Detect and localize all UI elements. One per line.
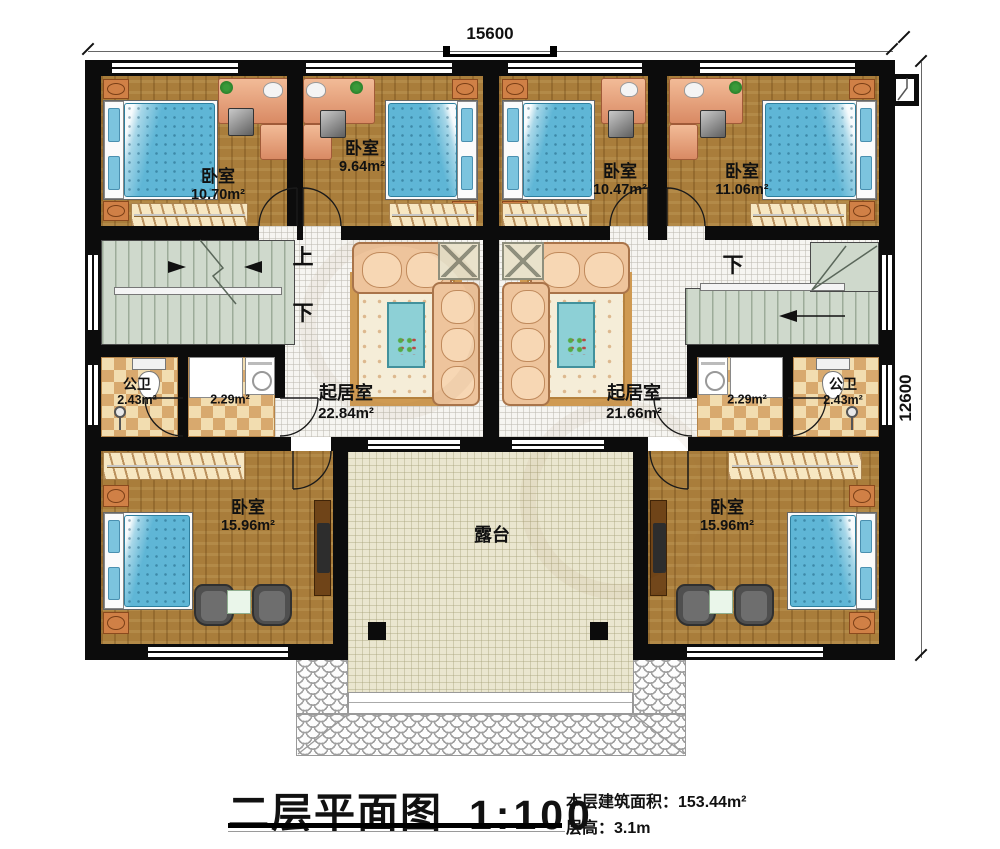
sofa-cushion xyxy=(584,252,624,288)
sofa-cushion xyxy=(511,328,545,362)
side-table xyxy=(709,590,733,614)
bed-headboard xyxy=(104,101,124,199)
window xyxy=(879,365,895,425)
wall-segment xyxy=(333,437,348,660)
desk-lamp-icon xyxy=(684,82,704,98)
wall-segment xyxy=(85,60,101,660)
wardrobe xyxy=(728,452,862,480)
nightstand xyxy=(849,79,875,99)
room-label-living-left: 起居室22.84m² xyxy=(318,383,374,423)
wardrobe xyxy=(389,203,477,227)
stair-down-label: 下 xyxy=(723,249,744,279)
room-area: 10.70m² xyxy=(191,188,245,205)
plan-title: 二层平面图 xyxy=(228,779,443,839)
floor-plan-canvas: 卧室10.70m² 卧室9.64m² 卧室10.47m² 卧室11.06m² 公… xyxy=(0,0,1000,849)
room-label-bedroom-br: 卧室15.96m² xyxy=(700,498,754,536)
wall-segment xyxy=(483,76,499,437)
room-area: 21.66m² xyxy=(606,405,662,423)
wall-segment xyxy=(287,76,303,226)
sofa-cushion xyxy=(511,290,545,324)
pillow xyxy=(108,108,120,143)
pillow xyxy=(108,520,120,554)
plant-icon xyxy=(220,81,233,94)
wardrobe xyxy=(502,203,590,227)
wall-segment xyxy=(688,437,879,451)
room-area: 22.84m² xyxy=(318,405,374,423)
side-table xyxy=(502,242,544,280)
room-label-bedroom-tmr: 卧室10.47m² xyxy=(593,162,647,200)
chair xyxy=(252,584,292,626)
dimension-line-right xyxy=(921,62,922,658)
desk-lamp-icon xyxy=(620,82,638,97)
wall-segment xyxy=(348,437,368,452)
window xyxy=(879,255,895,330)
title-block: 二层平面图 1:100 xyxy=(228,779,594,839)
computer-icon xyxy=(320,110,346,138)
desk-lamp-icon xyxy=(306,82,326,98)
pillow xyxy=(507,156,519,191)
title-underline-thin xyxy=(228,831,565,832)
nightstand xyxy=(103,201,129,221)
bed xyxy=(502,100,595,200)
computer-icon xyxy=(608,110,634,138)
room-area: 2.29m² xyxy=(727,393,767,408)
bed-mattress xyxy=(388,103,457,197)
washing-machine xyxy=(245,357,275,395)
room-label-laundry-left: 2.29m² xyxy=(210,393,250,408)
toilet-tank xyxy=(816,358,850,370)
tv-icon xyxy=(317,523,330,573)
room-label-bedroom-tml: 卧室9.64m² xyxy=(339,139,385,177)
room-area: 11.06m² xyxy=(715,183,768,200)
pillow xyxy=(461,156,473,191)
room-name: 卧室 xyxy=(593,162,647,182)
room-name: 起居室 xyxy=(318,383,374,405)
room-area: 15.96m² xyxy=(221,519,275,536)
wall-segment xyxy=(687,357,697,398)
room-area: 10.47m² xyxy=(593,183,647,200)
title-underline xyxy=(228,823,562,828)
bed-mattress xyxy=(124,515,190,607)
room-name: 起居室 xyxy=(606,383,662,405)
wall-segment xyxy=(297,226,303,240)
wardrobe xyxy=(103,452,245,480)
bed-headboard xyxy=(856,513,876,609)
nightstand xyxy=(103,79,129,99)
sofa xyxy=(502,282,550,406)
terrace-railing xyxy=(348,692,633,714)
bed-mattress xyxy=(523,103,592,197)
nightstand xyxy=(849,485,875,507)
window xyxy=(700,60,855,76)
stair-up-label: 上 xyxy=(293,241,314,271)
computer-icon xyxy=(700,110,726,138)
bed-mattress xyxy=(790,515,856,607)
wall-segment xyxy=(101,226,259,240)
dimension-tick xyxy=(898,31,911,44)
bed-headboard xyxy=(457,101,477,199)
wall-segment xyxy=(275,357,285,398)
window xyxy=(85,365,101,425)
room-name: 卧室 xyxy=(221,498,275,518)
room-name: 露台 xyxy=(474,525,510,547)
dimension-label-right: 12600 xyxy=(896,374,916,421)
nightstand xyxy=(502,79,528,99)
room-label-bedroom-tr: 卧室11.06m² xyxy=(715,162,768,200)
desk xyxy=(669,124,698,160)
room-label-bedroom-tl: 卧室10.70m² xyxy=(191,167,245,205)
room-area: 2.43m² xyxy=(823,393,863,408)
window xyxy=(112,60,238,76)
room-label-bedroom-bl: 卧室15.96m² xyxy=(221,498,275,536)
stair-rail-right xyxy=(700,283,845,291)
chair xyxy=(734,584,774,626)
wall-segment xyxy=(460,437,512,452)
watermark xyxy=(520,400,720,600)
side-table xyxy=(227,590,251,614)
floor-drain-icon xyxy=(851,417,853,430)
room-area: 9.64m² xyxy=(339,160,385,177)
nightstand xyxy=(849,201,875,221)
room-name: 卧室 xyxy=(700,498,754,518)
room-label-living-right: 起居室21.66m² xyxy=(606,383,662,423)
bed xyxy=(103,512,193,610)
pillow xyxy=(507,108,519,143)
wardrobe xyxy=(750,203,847,227)
flue-box xyxy=(891,74,919,106)
pillow xyxy=(860,520,872,554)
room-label-laundry-right: 2.29m² xyxy=(727,393,767,408)
room-name: 卧室 xyxy=(191,167,245,187)
bed-headboard xyxy=(104,513,124,609)
plant-icon xyxy=(729,81,742,94)
wall-segment xyxy=(341,226,483,240)
washing-machine xyxy=(698,357,728,395)
sliding-door xyxy=(512,437,604,452)
wardrobe xyxy=(131,203,248,227)
nightstand xyxy=(103,485,129,507)
window xyxy=(687,644,823,660)
room-area: 2.29m² xyxy=(210,393,250,408)
wall-segment xyxy=(648,76,667,226)
floor-height-note: 层高：3.1m xyxy=(566,814,650,838)
pillow xyxy=(860,567,872,601)
staircase-right xyxy=(685,288,879,345)
nightstand xyxy=(452,79,478,99)
wall-segment xyxy=(879,60,895,660)
plant-icon xyxy=(350,81,363,94)
window xyxy=(148,644,288,660)
computer-icon xyxy=(228,108,254,136)
dimension-tick xyxy=(82,43,95,56)
bed xyxy=(787,512,877,610)
room-name: 公卫 xyxy=(117,376,157,393)
room-name: 卧室 xyxy=(715,162,768,182)
room-label-bath-right: 公卫2.43m² xyxy=(823,376,863,408)
bed xyxy=(762,100,877,200)
floor-drain-icon xyxy=(119,417,121,430)
nightstand xyxy=(849,612,875,634)
window xyxy=(508,60,642,76)
wall-segment xyxy=(101,345,285,357)
wall-segment xyxy=(648,226,667,240)
tv-cabinet xyxy=(314,500,331,596)
pillow xyxy=(860,156,872,191)
room-name: 公卫 xyxy=(823,376,863,393)
roof-tile-band-bottom xyxy=(296,714,686,756)
toilet-tank xyxy=(132,358,166,370)
bed-headboard xyxy=(503,101,523,199)
desk-lamp-icon xyxy=(263,82,283,98)
pillow xyxy=(108,567,120,601)
room-area: 2.43m² xyxy=(117,393,157,408)
dimension-label-top: 15600 xyxy=(466,24,513,44)
coffee-table xyxy=(557,302,595,368)
terrace-column xyxy=(368,622,386,640)
bed xyxy=(385,100,478,200)
floor-area-note: 本层建筑面积：153.44m² xyxy=(566,788,747,812)
wall-segment xyxy=(499,226,610,240)
stair-rail-left xyxy=(114,287,282,295)
bed-mattress xyxy=(765,103,856,197)
wall-segment xyxy=(783,357,793,437)
sliding-door xyxy=(368,437,460,452)
pillow xyxy=(860,108,872,143)
room-area: 15.96m² xyxy=(700,519,754,536)
wall-segment xyxy=(687,345,879,357)
room-name: 卧室 xyxy=(339,139,385,159)
wall-segment xyxy=(633,437,648,660)
desk xyxy=(260,124,289,160)
sofa-cushion xyxy=(511,366,545,400)
pillow xyxy=(108,156,120,191)
wall-segment xyxy=(705,226,879,240)
pillow xyxy=(461,108,473,143)
wall-segment xyxy=(604,437,633,452)
dimension-bracket xyxy=(443,46,557,57)
nightstand xyxy=(103,612,129,634)
wall-segment xyxy=(85,437,291,451)
dimension-tick xyxy=(886,43,899,56)
bed-headboard xyxy=(856,101,876,199)
window xyxy=(306,60,452,76)
room-label-terrace: 露台 xyxy=(474,525,510,547)
terrace-column xyxy=(590,622,608,640)
wall-segment xyxy=(178,357,188,437)
stair-down-label: 下 xyxy=(293,297,314,327)
window xyxy=(85,255,101,330)
room-label-bath-left: 公卫2.43m² xyxy=(117,376,157,408)
